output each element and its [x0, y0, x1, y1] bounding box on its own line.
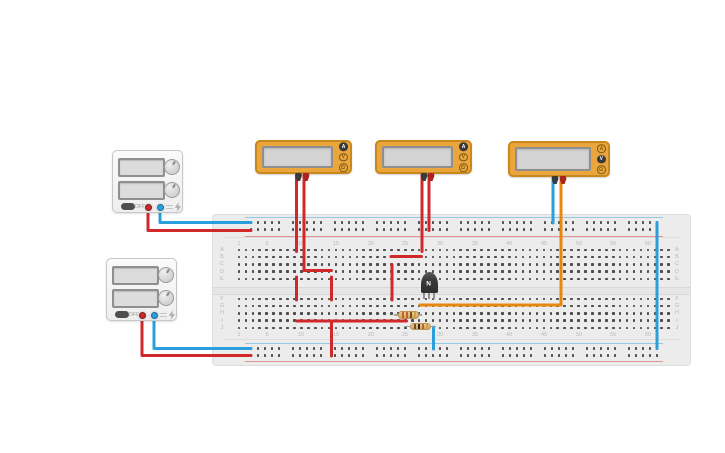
negative-terminal[interactable]	[151, 312, 158, 319]
voltage-display	[112, 266, 159, 285]
voltage-display	[118, 158, 165, 177]
power-button-label: OFF	[129, 312, 140, 318]
resistor-2[interactable]	[404, 322, 436, 331]
power-button[interactable]	[121, 203, 135, 210]
mode-button-volts[interactable]: V	[339, 153, 348, 162]
positive-terminal[interactable]	[145, 204, 152, 211]
resistor-band	[426, 324, 428, 329]
mode-buttons: A V Ω	[339, 142, 348, 172]
mode-button-volts[interactable]: V	[597, 155, 606, 164]
mode-button-amps[interactable]: A	[339, 142, 348, 151]
positive-terminal[interactable]	[139, 312, 146, 319]
power-button-label: OFF	[135, 204, 146, 210]
resistor-band	[402, 312, 404, 317]
current-knob[interactable]	[164, 182, 180, 198]
resistor-band	[422, 324, 424, 329]
mode-button-ohms[interactable]: Ω	[459, 163, 468, 172]
brand-mark	[166, 205, 173, 209]
brand-mark	[160, 313, 167, 317]
mode-button-amps[interactable]: A	[459, 142, 468, 151]
power-supply-2[interactable]: OFF	[106, 258, 177, 321]
circuit-canvas: AABBCCDDEEFFGGHHIIJJ11551010151520202525…	[0, 0, 725, 453]
wire-layer	[0, 0, 725, 453]
multimeter-display	[262, 146, 333, 168]
multimeter-display	[382, 146, 453, 168]
transistor-body: N	[421, 272, 438, 293]
multimeter-display	[515, 147, 591, 171]
power-supply-1[interactable]: OFF	[112, 150, 183, 213]
mm1-red-probe-wire[interactable]	[304, 175, 332, 271]
resistor-band	[406, 312, 408, 317]
mode-buttons: A V Ω	[597, 144, 606, 174]
mode-button-volts[interactable]: V	[459, 153, 468, 162]
power-button[interactable]	[115, 311, 129, 318]
resistor-body	[398, 311, 419, 318]
mode-button-ohms[interactable]: Ω	[339, 163, 348, 172]
power-bolt-icon	[174, 202, 182, 212]
multimeter-3[interactable]: A V Ω	[508, 141, 610, 177]
mm3-red-probe-wire[interactable]	[420, 175, 561, 305]
current-display	[112, 289, 159, 308]
multimeter-1[interactable]: A V Ω	[255, 140, 352, 174]
ps1-positive-wire[interactable]	[148, 210, 251, 231]
transistor-npn[interactable]: N	[421, 272, 438, 299]
resistor-band	[418, 324, 420, 329]
current-knob[interactable]	[158, 290, 174, 306]
power-bolt-icon	[168, 310, 176, 320]
resistor-band	[414, 324, 416, 329]
resistor-1[interactable]	[394, 310, 422, 319]
resistor-body	[410, 323, 431, 330]
mode-buttons: A V Ω	[459, 142, 468, 172]
multimeter-2[interactable]: A V Ω	[375, 140, 472, 174]
resistor-band	[410, 312, 412, 317]
ps2-negative-wire[interactable]	[154, 317, 251, 349]
current-display	[118, 181, 165, 200]
voltage-knob[interactable]	[158, 267, 174, 283]
voltage-knob[interactable]	[164, 159, 180, 175]
mode-button-amps[interactable]: A	[597, 144, 606, 153]
mode-button-ohms[interactable]: Ω	[597, 165, 606, 174]
negative-terminal[interactable]	[157, 204, 164, 211]
resistor-band	[414, 312, 416, 317]
